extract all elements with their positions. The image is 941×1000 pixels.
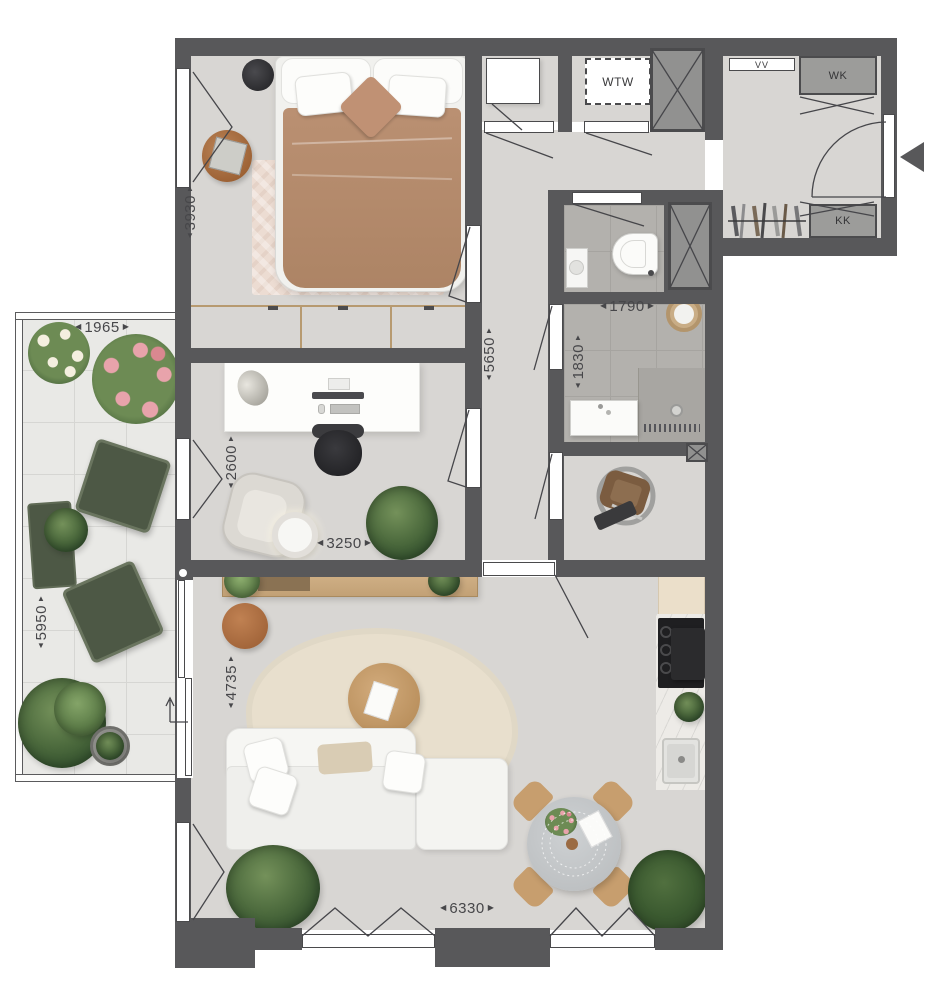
storage-door-opening: [549, 452, 563, 520]
arrow-up-icon: ▲: [485, 327, 493, 335]
arrow-left-icon: ◀: [440, 904, 446, 912]
washer-closet-door-opening: [484, 121, 554, 133]
folding-door-left: [302, 934, 435, 948]
shower-drain: [644, 424, 700, 432]
extractor-hood: [671, 628, 705, 680]
shower-head: [670, 404, 683, 417]
bedroom-door-opening: [466, 225, 481, 303]
arrow-left-icon: ◀: [600, 302, 606, 310]
wall-toilet-left: [548, 205, 564, 292]
wall-entrance-hall-bottom: [705, 238, 897, 256]
arrow-right-icon: ▶: [488, 904, 494, 912]
arrow-up-icon: ▲: [186, 185, 194, 193]
balcony-plant-small: [54, 682, 106, 736]
living-room-door-opening: [483, 562, 555, 576]
arrow-up-icon: ▲: [227, 435, 235, 443]
arrow-down-icon: ▼: [574, 382, 582, 390]
sofa-pillow: [381, 749, 426, 794]
vv-label: VV: [755, 60, 769, 70]
office-window: [176, 438, 190, 520]
wall-bottom-center: [435, 928, 550, 967]
arrow-down-icon: ▼: [485, 374, 493, 382]
balcony-railing-bottom: [15, 774, 185, 782]
laundry-basket-towel: [674, 304, 694, 324]
dimension-value: 1965: [84, 319, 119, 336]
dimension-office-height: ▲ 2600 ▼: [220, 410, 242, 515]
dimension-value: 3250: [326, 535, 361, 552]
vanity-faucet: [598, 404, 603, 409]
dimension-value: 5650: [481, 337, 498, 372]
folding-door-right: [550, 934, 655, 948]
wall-office-living: [190, 560, 482, 577]
dimension-office-width: ◀ 3250 ▶: [304, 534, 384, 552]
dimension-bathroom-height: ▲ 1830 ▼: [567, 312, 589, 412]
dimension-value: 4735: [223, 665, 240, 700]
arrow-up-icon: ▲: [574, 334, 582, 342]
office-door-opening: [466, 408, 481, 488]
dimension-value: 3930: [182, 195, 199, 230]
dimension-balcony-width: ◀ 1965 ▶: [62, 318, 142, 336]
arrow-down-icon: ▼: [227, 702, 235, 710]
wtw-closet-door-opening: [584, 121, 649, 133]
sliding-door-panel: [178, 580, 185, 678]
toilet-seat: [620, 240, 646, 268]
balcony-pot-plant: [96, 732, 124, 760]
arrow-right-icon: ▶: [648, 302, 654, 310]
bedroom-wardrobe: [190, 305, 465, 350]
dimension-value: 1830: [570, 344, 587, 379]
hand-basin-bowl: [569, 260, 584, 275]
dimension-living-width: ◀ 6330 ▶: [427, 899, 507, 917]
technical-shaft: [668, 202, 712, 290]
wk-cabinet: WK: [799, 56, 877, 95]
wk-label: WK: [829, 70, 848, 82]
sliding-door-post-cap: [179, 569, 187, 577]
sofa-chaise: [416, 758, 508, 850]
wtw-label: WTW: [602, 75, 633, 89]
dining-plant: [628, 850, 708, 932]
technical-shaft: [650, 48, 705, 132]
wall-top: [175, 38, 897, 56]
dimension-value: 2600: [223, 445, 240, 480]
office-chair: [314, 430, 362, 476]
arrow-left-icon: ◀: [317, 539, 323, 547]
dimension-bedroom-height: ▲ 3930 ▼: [179, 160, 201, 265]
keyboard: [330, 404, 360, 414]
floor-storage-closet: [564, 456, 705, 560]
sofa-throw: [317, 741, 373, 775]
wall-shaft-hall: [705, 48, 723, 140]
wardrobe-handle: [338, 306, 348, 310]
dimension-balcony-height: ▲ 5950 ▼: [30, 570, 52, 675]
arrow-up-icon: ▲: [227, 655, 235, 663]
kk-label: KK: [835, 215, 851, 227]
kitchen-counter-plant: [674, 692, 704, 722]
wall-closet-divider: [558, 56, 572, 132]
vanity-drain: [606, 410, 611, 415]
wtw-unit: WTW: [585, 58, 651, 105]
kk-cabinet: KK: [809, 204, 877, 238]
balcony-table-plant: [44, 508, 88, 552]
arrow-down-icon: ▼: [186, 232, 194, 240]
bathroom-door-opening: [549, 304, 563, 370]
entrance-arrow-icon: [900, 142, 924, 172]
dimension-value: 6330: [449, 900, 484, 917]
dimension-value: 5950: [33, 605, 50, 640]
wall-bottom-left: [255, 928, 302, 950]
balcony-flower-pot-pink: [92, 334, 180, 424]
wardrobe-handle: [268, 306, 278, 310]
dining-table-flowers: [545, 808, 577, 836]
dimension-bathroom-width: ◀ 1790 ▶: [588, 297, 666, 315]
wall-bottom-left-corner: [175, 918, 255, 968]
dimension-hallway-length: ▲ 5650 ▼: [478, 302, 500, 407]
arrow-up-icon: ▲: [37, 595, 45, 603]
technical-shaft-small: [686, 443, 708, 462]
wall-lamp-left: [242, 59, 274, 91]
washing-machine: [486, 58, 540, 104]
wall-closet-living: [556, 560, 705, 577]
entrance-door-frame: [883, 114, 895, 198]
monitor: [312, 392, 364, 399]
wall-bedroom-office: [190, 348, 465, 363]
dimension-living-height: ▲ 4735 ▼: [220, 630, 242, 735]
dining-table-decor: [566, 838, 578, 850]
arrow-right-icon: ▶: [365, 539, 371, 547]
floor-corridor: [482, 132, 705, 190]
arrow-down-icon: ▼: [227, 482, 235, 490]
wardrobe-handle: [424, 306, 434, 310]
dimension-value: 1790: [609, 298, 644, 315]
toilet-door-opening: [572, 192, 642, 204]
desk-speaker: [328, 378, 350, 390]
vv-unit: VV: [729, 58, 795, 71]
floor-plan: WTW VV WK KK: [0, 0, 941, 1000]
mouse: [318, 404, 325, 414]
wall-bottom-right: [655, 928, 723, 950]
wall-right-lower: [705, 240, 723, 950]
arrow-right-icon: ▶: [123, 323, 129, 331]
arrow-left-icon: ◀: [75, 323, 81, 331]
arrow-down-icon: ▼: [37, 642, 45, 650]
sliding-door-panel: [185, 678, 192, 776]
sink-faucet: [678, 756, 685, 763]
toilet-flush-button: [648, 270, 654, 276]
living-room-window: [176, 822, 190, 922]
